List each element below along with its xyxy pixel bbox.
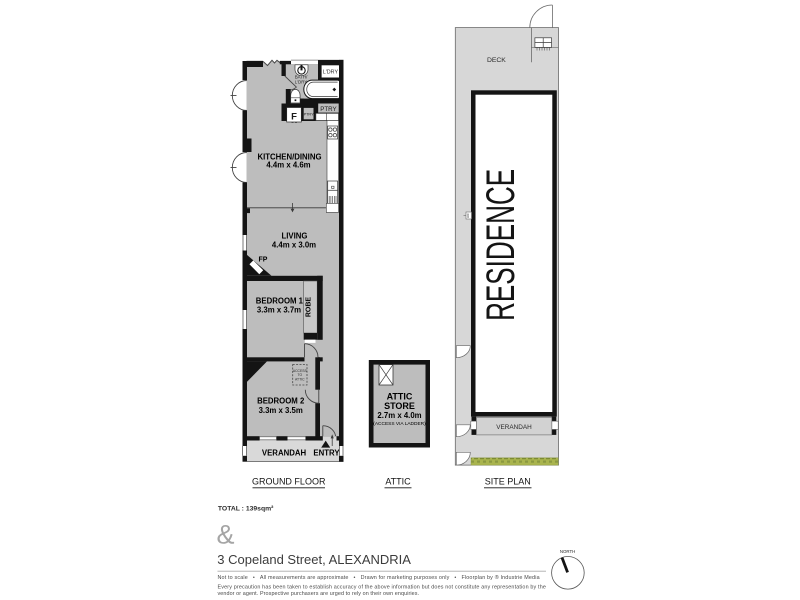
svg-text:LIVING: LIVING: [282, 232, 308, 241]
svg-text:GROUND FLOOR: GROUND FLOOR: [252, 477, 326, 487]
svg-text:PTRY: PTRY: [320, 106, 336, 113]
svg-text:(ACCESS VIA LADDER): (ACCESS VIA LADDER): [373, 421, 426, 427]
svg-text:3.3m x 3.7m: 3.3m x 3.7m: [257, 306, 301, 315]
svg-text:ATTIC: ATTIC: [387, 392, 413, 402]
svg-text:NORTH: NORTH: [560, 549, 576, 554]
svg-text:Not to scale • All measure: Not to scale • All measurements are appr…: [218, 574, 540, 581]
svg-text:TOTAL : 139sqm²: TOTAL : 139sqm²: [218, 506, 274, 513]
svg-text:ATTIC: ATTIC: [385, 477, 411, 487]
svg-text:F: F: [291, 112, 297, 123]
svg-text:3 Copeland Street, ALEXANDRIA: 3 Copeland Street, ALEXANDRIA: [217, 552, 411, 567]
svg-text:A/C: A/C: [466, 213, 470, 218]
svg-text:VERANDAH: VERANDAH: [496, 424, 532, 431]
svg-text:Every precaution has been take: Every precaution has been taken to estab…: [218, 584, 547, 590]
svg-text:3.3m x 3.5m: 3.3m x 3.5m: [259, 406, 303, 415]
svg-text:DECK: DECK: [487, 57, 506, 64]
svg-text:4.4m x 4.6m: 4.4m x 4.6m: [266, 161, 310, 170]
svg-text:&: &: [217, 520, 235, 550]
svg-text:4.4m x 3.0m: 4.4m x 3.0m: [272, 241, 316, 250]
svg-text:ATTIC: ATTIC: [295, 377, 305, 381]
svg-text:FP: FP: [259, 257, 268, 264]
svg-text:ENTRY: ENTRY: [313, 449, 340, 458]
svg-text:2.7m x 4.0m: 2.7m x 4.0m: [377, 411, 421, 420]
svg-text:vendor or agent. Prospective p: vendor or agent. Prospective purchasers …: [218, 591, 420, 597]
svg-text:RESIDENCE: RESIDENCE: [479, 169, 523, 321]
svg-text:ROBE: ROBE: [306, 297, 313, 318]
svg-text:PTRY: PTRY: [304, 112, 315, 116]
svg-text:VERANDAH: VERANDAH: [262, 449, 307, 458]
svg-text:BEDROOM 2: BEDROOM 2: [257, 396, 305, 405]
svg-text:SITE PLAN: SITE PLAN: [485, 477, 531, 487]
svg-text:BEDROOM 1: BEDROOM 1: [256, 297, 304, 306]
svg-text:STORE: STORE: [384, 401, 415, 411]
svg-text:L'DRY: L'DRY: [323, 70, 339, 76]
